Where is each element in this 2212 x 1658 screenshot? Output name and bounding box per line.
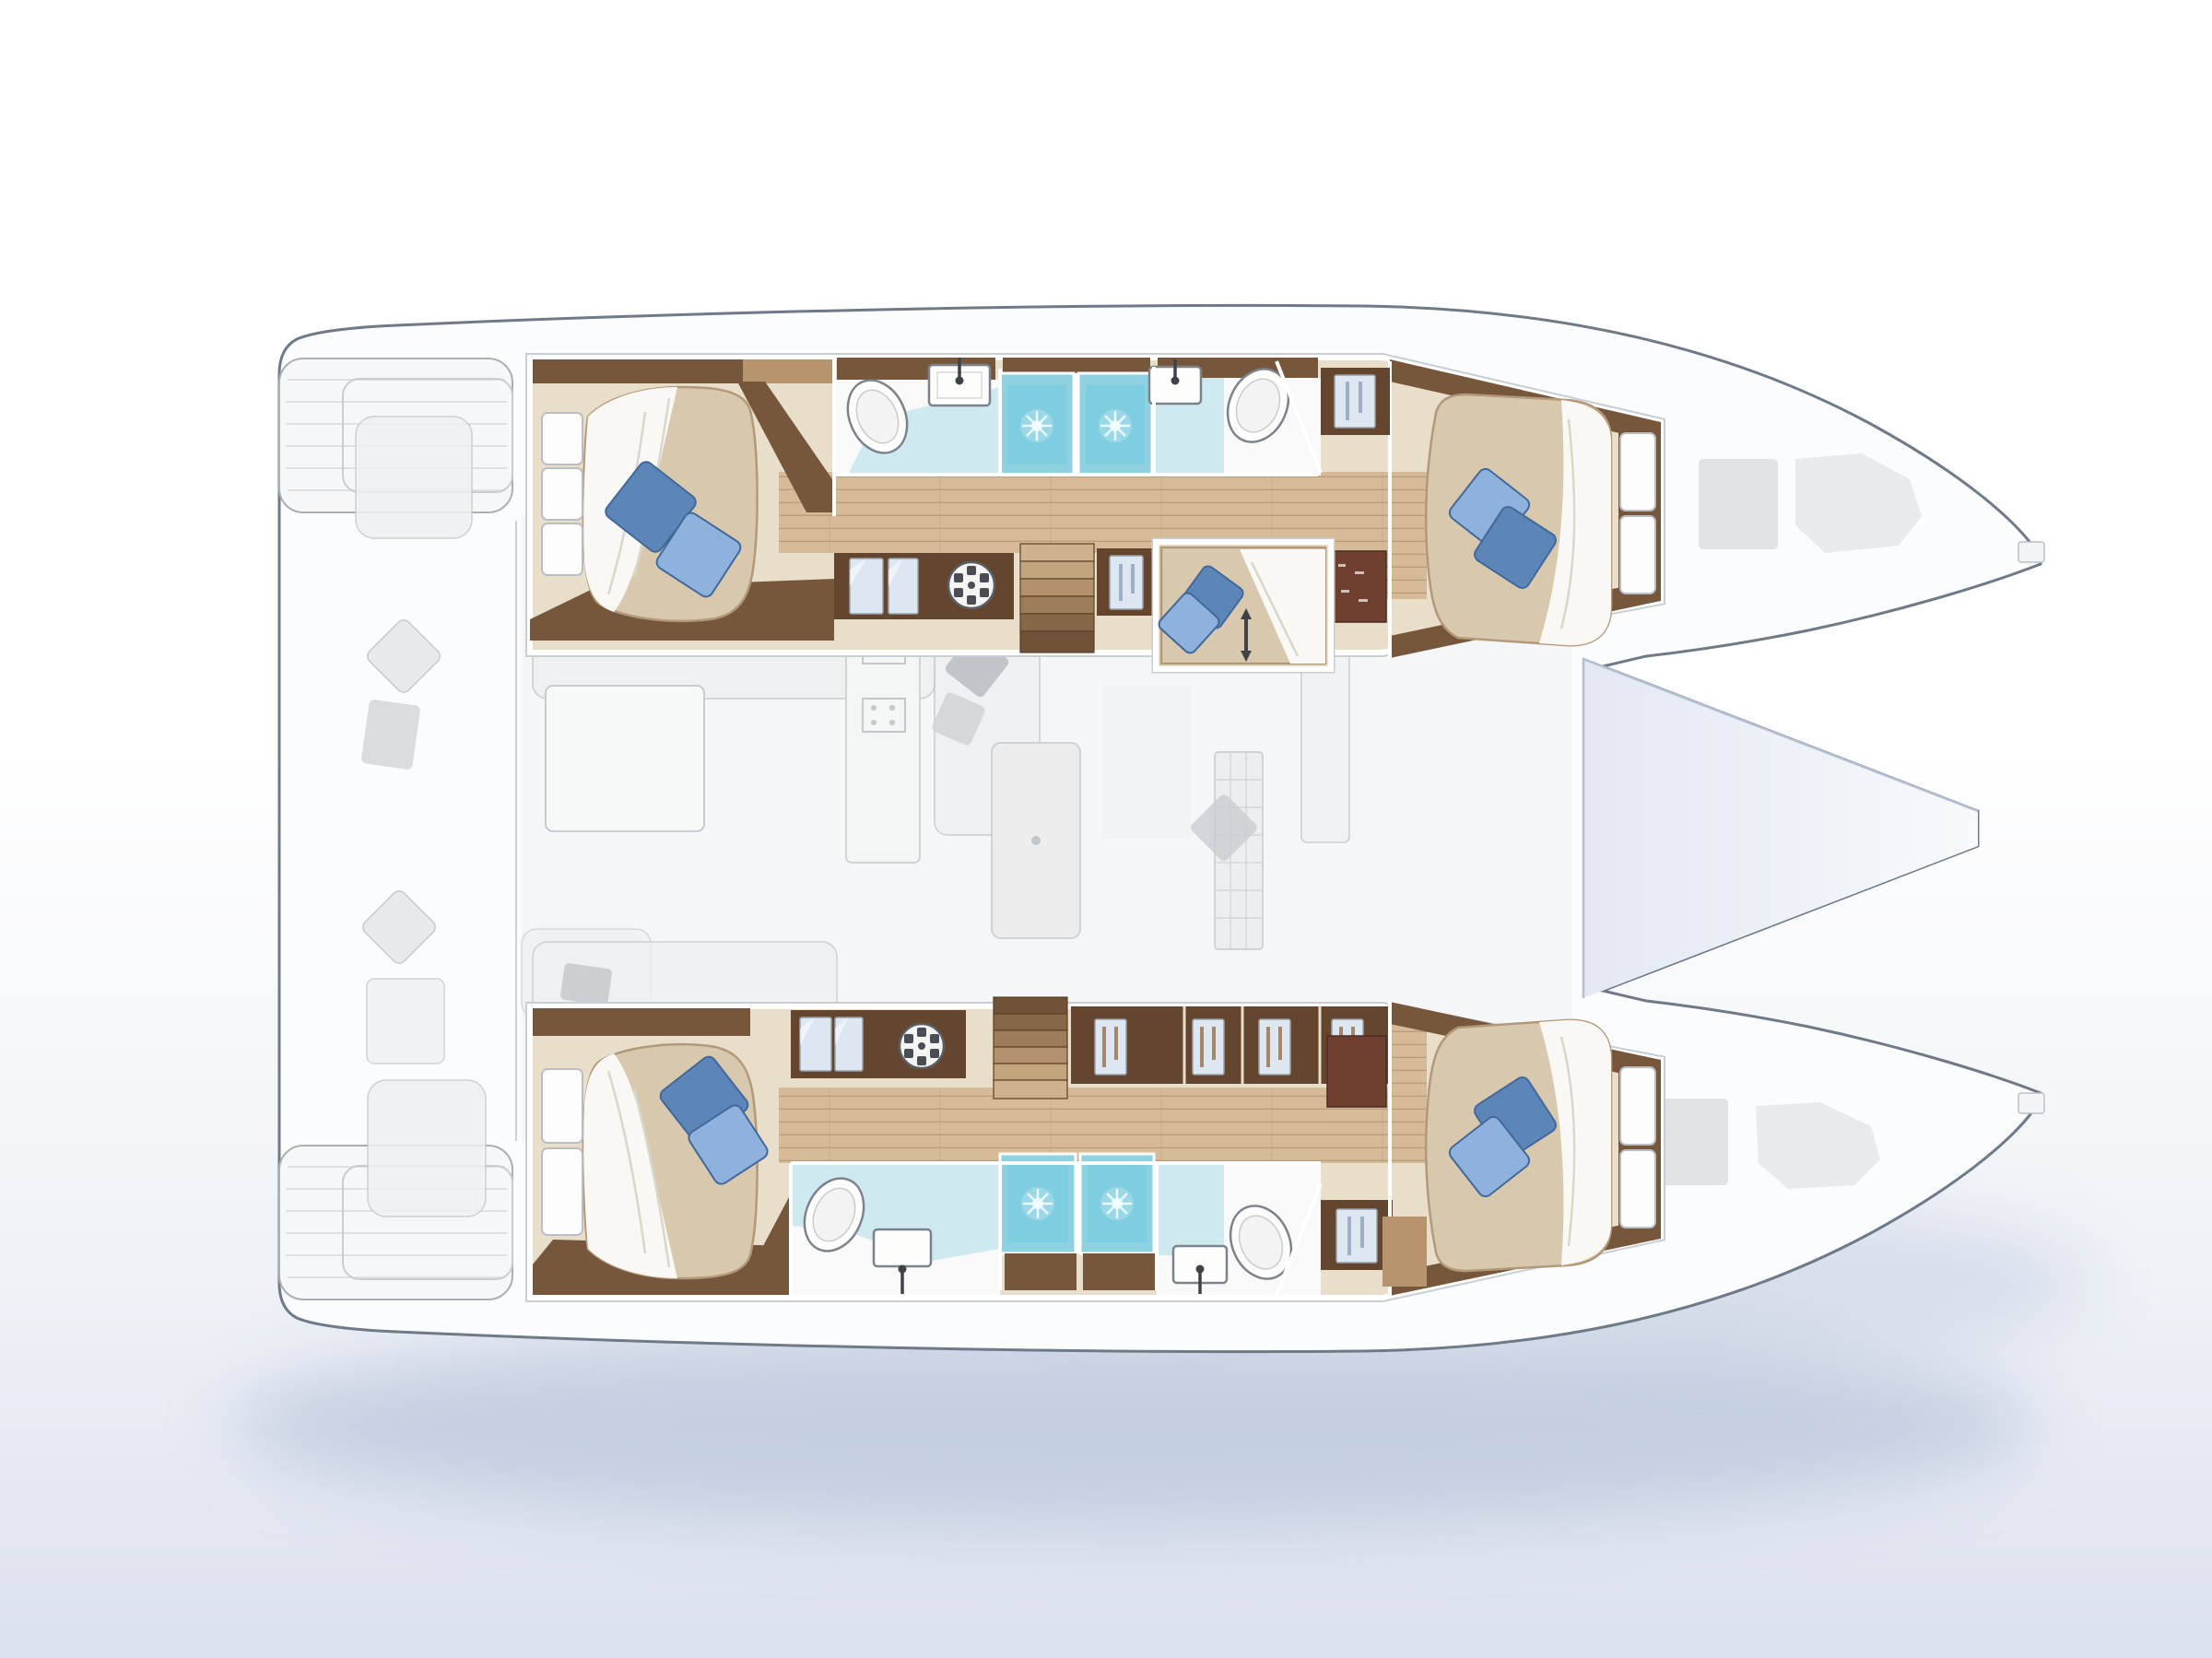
wardrobe-door [1259, 1019, 1290, 1075]
hull-window [542, 523, 582, 575]
wardrobe-door [1110, 556, 1143, 609]
floor-plan-canvas [0, 0, 2212, 1658]
bed-step [1382, 1217, 1427, 1287]
shower-spray-icon [1021, 1187, 1054, 1220]
hull-window [1620, 516, 1655, 594]
stair-treads [1020, 544, 1094, 653]
bow-hatch-ghost [1699, 459, 1778, 549]
stairs-port [1020, 544, 1094, 653]
cabin-wall-band [533, 359, 743, 383]
washing-machine-icon [900, 1024, 944, 1068]
cockpit-table-ghost [368, 1080, 486, 1217]
shower-spray-icon [1099, 409, 1132, 442]
catamaran-floor-plan [0, 0, 2212, 1658]
starboard-hull-interior [530, 997, 1661, 1298]
hallway-cabinets-starboard [791, 1010, 966, 1078]
shelf-cabinet-port [1327, 551, 1386, 622]
hull-window [1620, 1067, 1655, 1145]
bathroom-starboard-aft [791, 1163, 1000, 1295]
shelf-cabinet-starboard [1327, 1036, 1386, 1107]
mid-cabin [1156, 542, 1331, 669]
shower-spray-icon [1100, 1187, 1134, 1220]
hallway-cabinets-port [834, 553, 1014, 619]
stove-burner-ghost [889, 720, 895, 725]
washing-machine-icon [948, 562, 994, 608]
hull-window [542, 413, 582, 464]
stove-burner-ghost [871, 705, 877, 711]
shelf-item [1341, 590, 1349, 593]
island-handle-ghost [1031, 836, 1041, 845]
stall-sill [1005, 1253, 1077, 1290]
wardrobe-door [1193, 1019, 1224, 1075]
shelf-body [1327, 551, 1386, 622]
hull-window [1620, 1150, 1655, 1228]
cockpit-seat-ghost [367, 979, 444, 1064]
stairs-starboard [994, 997, 1067, 1099]
port-hull-interior [530, 358, 1661, 658]
anchor-fitting [2018, 542, 2044, 562]
faucet-head [1196, 1265, 1205, 1274]
lounge-cushion-ghost [559, 963, 612, 1006]
salon-rect-ghost [1102, 686, 1191, 839]
stove-burner-ghost [871, 720, 877, 725]
stair-treads [994, 997, 1067, 1099]
anchor-fitting [2018, 1093, 2044, 1113]
shower-spray-icon [1020, 409, 1053, 442]
shelf-item [1359, 599, 1368, 602]
stall-sill [1083, 1253, 1155, 1290]
shelf-item [1355, 571, 1364, 574]
wet-floor [1157, 1163, 1224, 1255]
cockpit-table-ghost [356, 417, 472, 538]
hull-window [542, 1069, 582, 1143]
washbasin [874, 1229, 931, 1266]
shelf-item [1338, 564, 1346, 567]
hallway-wardrobe-port [1097, 548, 1154, 616]
salon-table-ghost [546, 686, 704, 831]
closet-door [1336, 1209, 1377, 1263]
hull-window [1620, 433, 1655, 511]
galley-counter-ghost [846, 623, 920, 863]
faucet-head [1171, 377, 1180, 385]
hull-window [542, 1148, 582, 1235]
faucet-head [899, 1265, 907, 1274]
faucet-head [956, 377, 964, 385]
wardrobe-closet [1321, 368, 1390, 435]
cockpit-pad-ghost [360, 699, 420, 770]
cabin-wall-band-light [743, 359, 835, 383]
wardrobe-door [1095, 1019, 1126, 1075]
hull-window [542, 468, 582, 520]
cabin-wall-band [533, 1008, 750, 1036]
closet-door [1335, 375, 1375, 428]
stove-burner-ghost [889, 705, 895, 711]
